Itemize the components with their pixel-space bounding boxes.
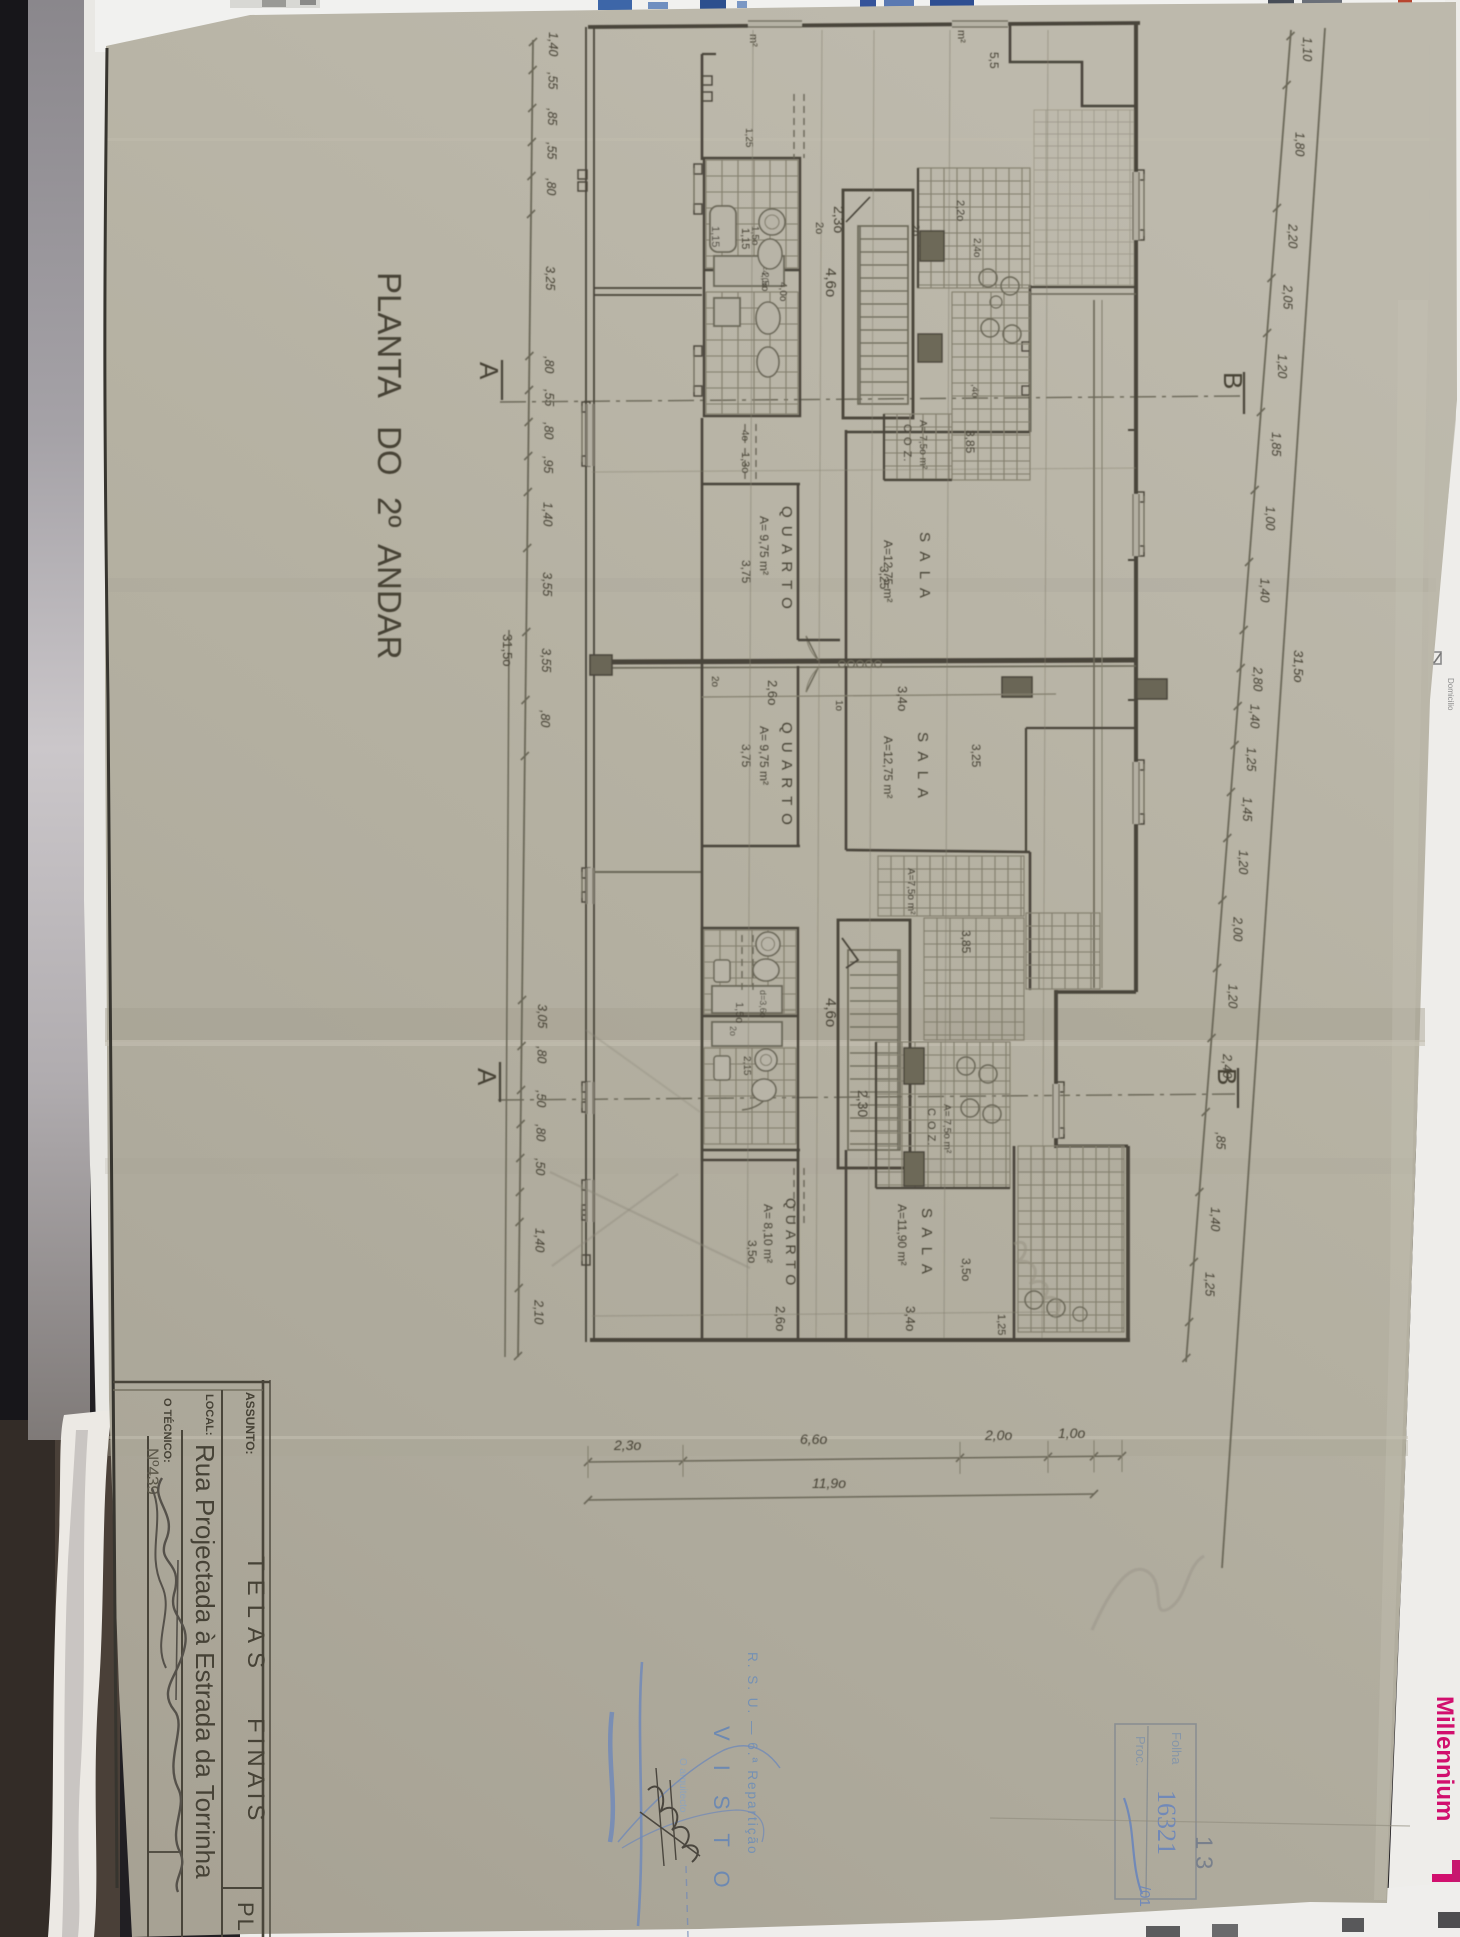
svg-text:,80: ,80 bbox=[541, 422, 555, 439]
svg-text:C O Z.: C O Z. bbox=[925, 1108, 937, 1146]
svg-text:1,3o: 1,3o bbox=[739, 452, 751, 473]
svg-text:2,05: 2,05 bbox=[1280, 284, 1294, 309]
svg-text:1,40: 1,40 bbox=[532, 1228, 546, 1252]
svg-text:FINAIS: FINAIS bbox=[242, 1718, 269, 1825]
svg-text:6,6o: 6,6o bbox=[800, 1431, 827, 1447]
svg-text:Q U A R T O: Q U A R T O bbox=[783, 1198, 799, 1286]
svg-text:2,15: 2,15 bbox=[741, 1056, 752, 1076]
svg-text:,85: ,85 bbox=[1214, 1132, 1228, 1149]
svg-text:1o: 1o bbox=[833, 700, 844, 712]
svg-text:TELAS: TELAS bbox=[242, 1556, 269, 1677]
svg-text:1,0o: 1,0o bbox=[1058, 1425, 1085, 1441]
svg-text:31,5o: 31,5o bbox=[500, 634, 515, 667]
svg-text:2,4o: 2,4o bbox=[971, 238, 982, 258]
svg-text:11,9o: 11,9o bbox=[812, 1475, 846, 1491]
svg-text:2,0o: 2,0o bbox=[984, 1427, 1012, 1443]
svg-text:4o: 4o bbox=[739, 430, 750, 442]
svg-text:2,2o: 2,2o bbox=[954, 200, 966, 221]
svg-text:3,55: 3,55 bbox=[540, 572, 554, 596]
svg-text:,95: ,95 bbox=[541, 456, 555, 473]
svg-text:5,5: 5,5 bbox=[987, 52, 1001, 69]
svg-text:PLANTA: PLANTA bbox=[371, 272, 408, 398]
svg-text:,50: ,50 bbox=[533, 1158, 547, 1175]
svg-text:S A L A: S A L A bbox=[918, 1208, 935, 1277]
svg-text:3,25: 3,25 bbox=[543, 266, 557, 290]
svg-text:Millennium: Millennium bbox=[1431, 1696, 1458, 1821]
svg-text:2,6o: 2,6o bbox=[765, 680, 780, 705]
svg-text:2,20: 2,20 bbox=[1285, 223, 1299, 248]
svg-text:,80: ,80 bbox=[542, 356, 556, 373]
svg-text:,55: ,55 bbox=[542, 389, 556, 406]
svg-text:1,20: 1,20 bbox=[1236, 850, 1250, 874]
svg-text:1,85: 1,85 bbox=[1269, 432, 1283, 456]
svg-text:1,40: 1,40 bbox=[1257, 578, 1271, 602]
svg-text:1,45: 1,45 bbox=[1240, 797, 1254, 821]
svg-text:3,5o: 3,5o bbox=[959, 1258, 973, 1282]
svg-text:,50: ,50 bbox=[534, 1090, 548, 1107]
svg-text:1,25: 1,25 bbox=[995, 1314, 1007, 1335]
svg-text:4,0o: 4,0o bbox=[777, 282, 788, 302]
svg-text:m²: m² bbox=[955, 30, 967, 43]
svg-text:3,75: 3,75 bbox=[739, 744, 753, 768]
svg-text:PL: PL bbox=[233, 1902, 258, 1933]
svg-text:1,20: 1,20 bbox=[1225, 984, 1239, 1008]
svg-text:1 3: 1 3 bbox=[1190, 1836, 1217, 1869]
svg-text:,80: ,80 bbox=[534, 1046, 548, 1063]
svg-text:A= 9,75 m²: A= 9,75 m² bbox=[757, 516, 771, 575]
svg-text:A= 7,5o m²: A= 7,5o m² bbox=[917, 420, 928, 470]
svg-text:4,6o: 4,6o bbox=[822, 268, 839, 297]
svg-text:2,5o: 2,5o bbox=[759, 272, 770, 292]
svg-text:A=11,90 m²: A=11,90 m² bbox=[895, 1204, 909, 1265]
svg-text:,55: ,55 bbox=[545, 72, 559, 89]
svg-text:A: A bbox=[472, 1068, 502, 1086]
svg-text:1,40: 1,40 bbox=[1247, 704, 1261, 728]
svg-text:ASSUNTO:: ASSUNTO: bbox=[243, 1392, 257, 1454]
svg-text:3,85: 3,85 bbox=[959, 930, 973, 954]
svg-text:,80: ,80 bbox=[533, 1124, 547, 1141]
svg-text:4,6o: 4,6o bbox=[822, 998, 839, 1027]
svg-text:31,5o: 31,5o bbox=[1291, 650, 1306, 683]
svg-text:ANDAR: ANDAR bbox=[371, 544, 408, 660]
svg-text:A= 9,75 m²: A= 9,75 m² bbox=[757, 726, 771, 785]
svg-text:S A L A: S A L A bbox=[916, 532, 933, 601]
svg-text:R. S. U. — 6.ª Repartição: R. S. U. — 6.ª Repartição bbox=[745, 1652, 760, 1856]
svg-text:3,55: 3,55 bbox=[539, 648, 553, 672]
svg-text:1,00: 1,00 bbox=[1263, 506, 1277, 530]
svg-text:DO: DO bbox=[371, 426, 408, 476]
svg-text:3,25: 3,25 bbox=[969, 744, 983, 768]
svg-text:2º: 2º bbox=[371, 497, 408, 527]
svg-text:2o: 2o bbox=[813, 222, 825, 234]
svg-text:1,80: 1,80 bbox=[1293, 132, 1307, 156]
svg-text:1,10: 1,10 bbox=[1300, 37, 1314, 61]
svg-text:,80: ,80 bbox=[544, 178, 558, 195]
svg-text:1,20: 1,20 bbox=[1275, 354, 1289, 378]
svg-text:S A L A: S A L A bbox=[914, 732, 931, 801]
svg-text:2,80: 2,80 bbox=[1250, 666, 1264, 691]
svg-text:2,10: 2,10 bbox=[531, 1299, 545, 1324]
svg-text:,85: ,85 bbox=[545, 108, 559, 125]
svg-text:A= 8,10 m²: A= 8,10 m² bbox=[761, 1204, 775, 1263]
svg-text:O arquitecto: O arquitecto bbox=[677, 1758, 688, 1813]
svg-text:3,4o: 3,4o bbox=[903, 1306, 918, 1331]
svg-text:16321: 16321 bbox=[1152, 1790, 1181, 1855]
svg-text:1,25: 1,25 bbox=[1203, 1272, 1217, 1296]
svg-text:Folha: Folha bbox=[1169, 1732, 1184, 1765]
svg-text:Proc.: Proc. bbox=[1133, 1736, 1148, 1766]
svg-text:Q U A R T O: Q U A R T O bbox=[778, 722, 795, 827]
svg-text:Rua Projectada à Estrada da To: Rua Projectada à Estrada da Torrinha bbox=[190, 1444, 220, 1879]
svg-text:2,6o: 2,6o bbox=[773, 1306, 788, 1331]
svg-text:2,3o: 2,3o bbox=[831, 206, 847, 233]
svg-text:1,40: 1,40 bbox=[546, 32, 560, 56]
svg-text:2o: 2o bbox=[909, 224, 921, 236]
svg-text:A=12,75 m²: A=12,75 m² bbox=[881, 736, 895, 798]
svg-text:C O Z.: C O Z. bbox=[901, 424, 913, 462]
svg-text:,80: ,80 bbox=[538, 710, 552, 727]
svg-text:LOCAL:: LOCAL: bbox=[203, 1394, 215, 1436]
svg-text:/01: /01 bbox=[1136, 1886, 1153, 1907]
svg-text:2,00: 2,00 bbox=[1231, 916, 1245, 941]
svg-text:A= 7,5o m²: A= 7,5o m² bbox=[941, 1104, 952, 1154]
svg-text:1,15: 1,15 bbox=[709, 226, 721, 247]
svg-text:1,5o: 1,5o bbox=[733, 1002, 745, 1023]
svg-text:A: A bbox=[474, 362, 504, 380]
svg-text:1,25: 1,25 bbox=[1244, 747, 1258, 771]
svg-text:2,3o: 2,3o bbox=[613, 1437, 641, 1453]
svg-text:3,25: 3,25 bbox=[877, 566, 891, 590]
svg-text:1,40: 1,40 bbox=[541, 502, 555, 526]
svg-text:A=7,5o m²: A=7,5o m² bbox=[905, 868, 916, 915]
svg-text:d=3,6o: d=3,6o bbox=[758, 990, 768, 1018]
svg-text:2o: 2o bbox=[728, 1026, 738, 1036]
svg-text:Domicilio: Domicilio bbox=[1446, 678, 1455, 711]
svg-text:3,85: 3,85 bbox=[963, 430, 977, 454]
svg-text:3,05: 3,05 bbox=[535, 1004, 549, 1028]
svg-text:1,40: 1,40 bbox=[1208, 1207, 1222, 1231]
svg-text:1,15: 1,15 bbox=[739, 228, 751, 249]
svg-text:3,4o: 3,4o bbox=[895, 686, 910, 711]
svg-text:Q U A R T O: Q U A R T O bbox=[778, 506, 795, 611]
svg-text:,55: ,55 bbox=[545, 142, 559, 159]
svg-text:2o: 2o bbox=[709, 676, 720, 688]
